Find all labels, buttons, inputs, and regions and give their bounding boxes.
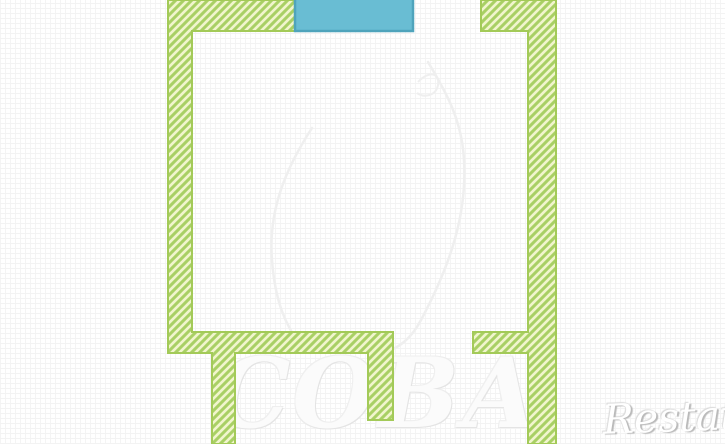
restate-watermark-text: Restate (602, 392, 725, 443)
balcony-block (295, 0, 413, 31)
floorplan-canvas: СОВА Restate (0, 0, 725, 444)
walls-svg (0, 0, 725, 444)
wall-main-outline (168, 0, 393, 444)
wall-right-outline (473, 0, 556, 444)
